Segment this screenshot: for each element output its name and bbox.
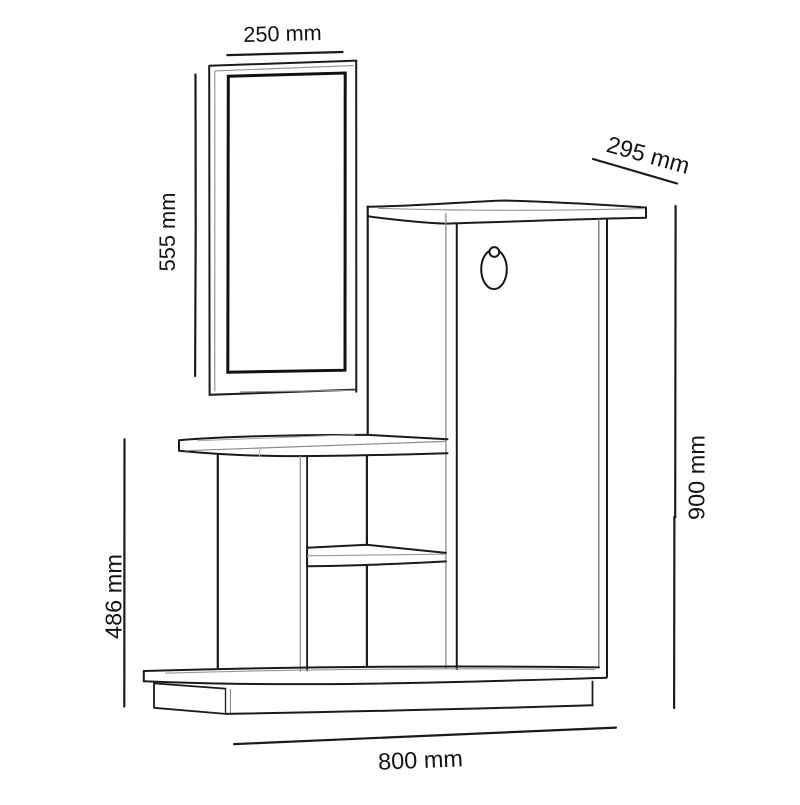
svg-text:486 mm: 486 mm (101, 554, 127, 639)
svg-text:800 mm: 800 mm (378, 745, 464, 774)
svg-text:250 mm: 250 mm (243, 20, 322, 47)
svg-text:900 mm: 900 mm (684, 435, 710, 520)
svg-text:555 mm: 555 mm (155, 193, 180, 272)
